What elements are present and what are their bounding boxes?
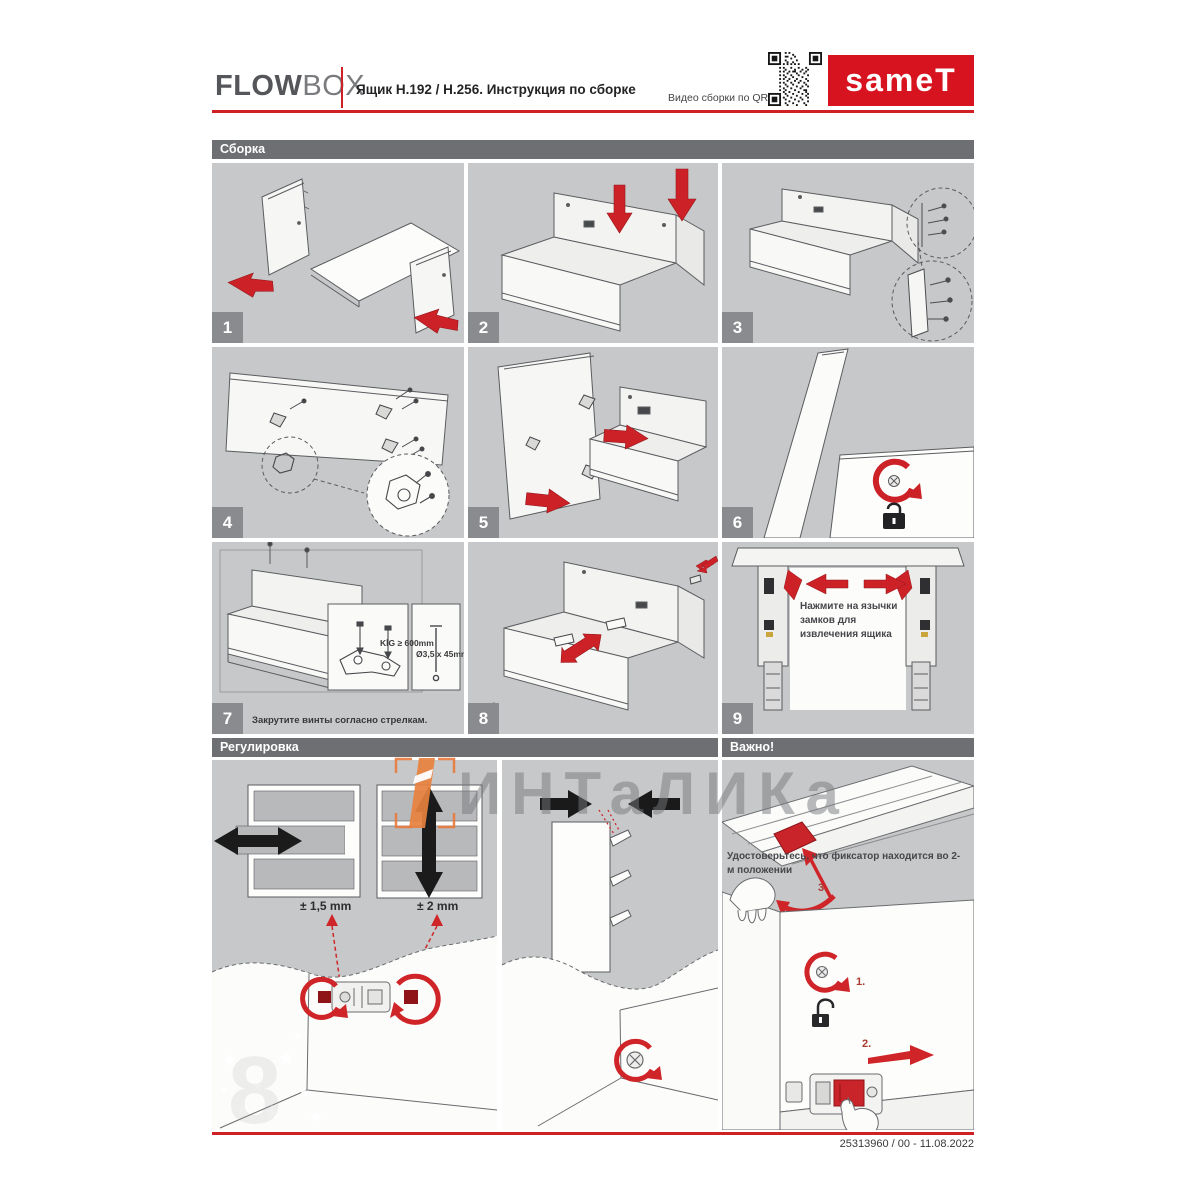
screw-icon-2 — [817, 967, 828, 978]
instruction-sheet: FLOWBOX Ящик Н.192 / Н.256. Инструкция п… — [0, 0, 1200, 1200]
step-7-caption: Закрутите винты согласно стрелкам. — [252, 715, 427, 726]
section-bar-adjustment: Регулировка — [212, 738, 718, 757]
step-3-number: 3 — [722, 312, 753, 343]
marker-1: 1. — [856, 976, 865, 988]
step-5-number: 5 — [468, 507, 499, 538]
samet-logo-text: sameT — [845, 62, 956, 99]
qr-code-icon — [768, 52, 822, 106]
horizontal-adjust-label: ± 1,5 mm — [300, 899, 351, 913]
step-2-number: 2 — [468, 312, 499, 343]
step-8-illustration — [468, 542, 718, 734]
adjustment-panel: ± 1,5 mm ± 2 mm — [212, 760, 497, 1130]
important-note: Удостоверьтесь, что фиксатор находится в… — [727, 850, 967, 878]
marker-2: 2. — [862, 1038, 871, 1050]
step-9-number: 9 — [722, 703, 753, 734]
latch-fitting — [332, 982, 390, 1012]
screw-icon — [627, 1052, 643, 1068]
qr-caption: Видео сборки по QR — [668, 92, 768, 104]
step-8-panel: 8 — [468, 542, 718, 734]
step-3-illustration — [722, 163, 974, 343]
important-illustration — [722, 760, 974, 1130]
section-bar-important: Важно! — [722, 738, 974, 757]
step-8-number: 8 — [468, 703, 499, 734]
header-divider — [341, 67, 343, 108]
step-1-number: 1 — [212, 312, 243, 343]
footer-doc-ref: 25313960 / 00 - 11.08.2022 — [212, 1138, 974, 1150]
vertical-adjust-label: ± 2 mm — [417, 899, 458, 913]
header-rule — [212, 110, 974, 113]
step-7-number: 7 — [212, 703, 243, 734]
tilt-adjustment-panel — [502, 760, 718, 1130]
step-2-illustration — [468, 163, 718, 343]
step-6-number: 6 — [722, 507, 753, 538]
step-4-illustration — [212, 347, 464, 538]
section-important-label: Важно! — [730, 740, 774, 754]
samet-logo: sameT — [828, 55, 974, 106]
section-assembly-label: Сборка — [220, 142, 265, 156]
screw-size-label: Ø3,5 x 45mm — [416, 649, 464, 659]
section-bar-assembly: Сборка — [212, 140, 974, 159]
step-5-illustration — [468, 347, 718, 538]
step-9-panel: Нажмите на язычки замков для извлечения … — [722, 542, 974, 734]
qr-code-svg — [768, 52, 822, 106]
step-2-panel: 2 — [468, 163, 718, 343]
step-6-illustration — [722, 347, 974, 538]
footer-rule — [212, 1132, 974, 1135]
page-title: Ящик Н.192 / Н.256. Инструкция по сборке — [356, 82, 636, 97]
step-5-panel: 5 — [468, 347, 718, 538]
step-3-panel: 3 — [722, 163, 974, 343]
step-4-number: 4 — [212, 507, 243, 538]
tilt-adjustment-illustration — [502, 760, 718, 1130]
step-9-note: Нажмите на язычки замков для извлечения … — [800, 600, 912, 641]
step-4-panel: 4 — [212, 347, 464, 538]
step-1-illustration — [212, 163, 464, 343]
kig-inset-label: KİG ≥ 600mm — [380, 638, 434, 648]
adjustment-illustration — [212, 760, 497, 1130]
step-6-panel: 6 — [722, 347, 974, 538]
step-1-panel: 1 — [212, 163, 464, 343]
brand-logo-bold: FLOW — [215, 70, 302, 102]
important-panel: Удостоверьтесь, что фиксатор находится в… — [722, 760, 974, 1130]
step-7-panel: KİG ≥ 600mm Ø3,5 x 45mm 7 Закрутите винт… — [212, 542, 464, 734]
marker-3: 3. — [818, 882, 827, 894]
section-adjustment-label: Регулировка — [220, 740, 299, 754]
screw-icon — [889, 476, 900, 487]
